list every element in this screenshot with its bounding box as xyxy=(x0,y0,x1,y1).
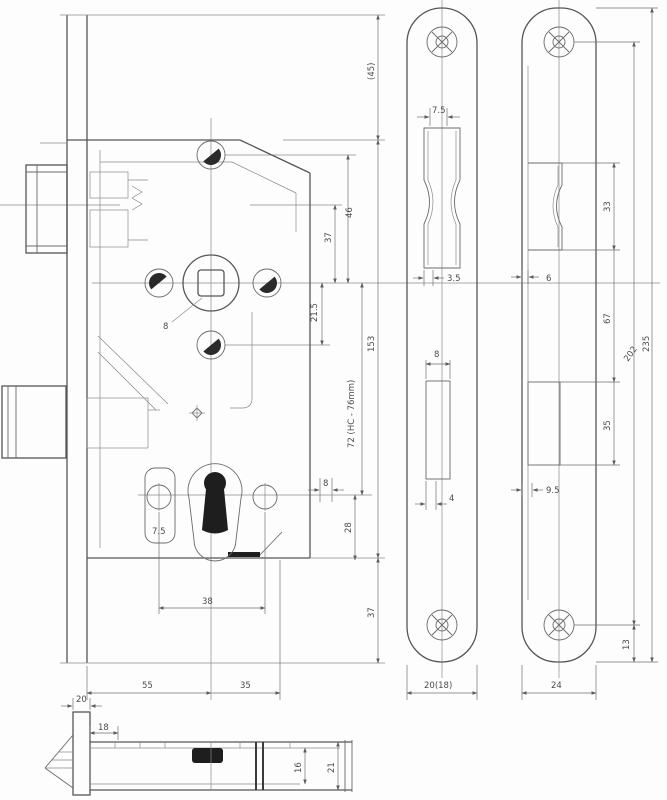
dim-sp-width: 24 xyxy=(551,681,562,691)
dim-bottom-gap: 37 xyxy=(367,607,377,618)
dim-sp-bolt-cutout: 35 xyxy=(603,420,613,431)
keyhole xyxy=(188,464,242,561)
strike-plate-view: 33 6 67 202 235 35 9.5 13 24 xyxy=(511,0,658,700)
dim-bv-inner: 18 xyxy=(98,723,109,733)
dim-fp-bolt-bottom: 4 xyxy=(449,494,454,504)
dim-key-8: 8 xyxy=(323,479,328,489)
bottom-latch-tip xyxy=(45,735,73,788)
main-dimensions: (45) 46 37 21.5 153 72 (HC - 76mm) 8 8 2… xyxy=(87,15,378,700)
strike-latch-cutout xyxy=(528,163,562,250)
faceplate-view: 7.5 3.5 8 4 20(18) xyxy=(407,0,477,700)
dim-sp-bolt-offset: 9.5 xyxy=(546,486,560,496)
dim-sp-latch-cutout: 33 xyxy=(603,201,613,212)
dim-21-5: 21.5 xyxy=(310,303,320,322)
strike-bolt-cutout xyxy=(528,382,560,465)
dim-35-bottom: 35 xyxy=(240,681,251,691)
dim-centres: 72 (HC - 76mm) xyxy=(347,380,357,448)
bottom-view: 20 18 16 21 xyxy=(45,695,352,795)
follower-leader xyxy=(172,298,202,322)
dim-follower-square: 8 xyxy=(163,322,168,332)
bottom-faceplate-bar xyxy=(73,712,90,795)
dim-bv-plate-width: 20 xyxy=(76,695,87,705)
bottom-follower-hub xyxy=(192,748,223,763)
faceplate-edge xyxy=(40,15,385,663)
faceplate-bolt-cutout xyxy=(426,381,450,479)
dim-46: 46 xyxy=(345,207,355,218)
strike-dimensions: 33 6 67 202 235 35 9.5 13 24 xyxy=(511,8,658,700)
dim-28: 28 xyxy=(344,522,354,533)
dim-fp-width: 20(18) xyxy=(424,681,452,691)
dim-fp-bolt-top: 8 xyxy=(434,350,439,360)
dead-bolt xyxy=(2,386,66,458)
dim-backset: 55 xyxy=(142,681,153,691)
dim-sp-screw-centres: 202 xyxy=(622,345,640,364)
dim-sp-bottom-offset: 13 xyxy=(622,639,632,650)
dim-sp-length: 235 xyxy=(642,336,652,352)
lock-drawing-page: (45) 46 37 21.5 153 72 (HC - 76mm) 8 8 2… xyxy=(0,0,667,800)
dim-38: 38 xyxy=(202,597,213,607)
follower-hub xyxy=(172,255,239,322)
dim-sp-between: 67 xyxy=(603,313,613,324)
case-bottom-tab xyxy=(228,552,260,557)
dim-fp-latch-top: 7.5 xyxy=(432,106,446,116)
lock-drawing: (45) 46 37 21.5 153 72 (HC - 76mm) 8 8 2… xyxy=(0,0,667,800)
dim-top-gap: (45) xyxy=(367,63,377,80)
dim-sp-lip: 6 xyxy=(546,274,551,284)
dim-case-height: 153 xyxy=(367,336,377,352)
latch-bolt xyxy=(26,165,67,253)
dim-fp-latch-bottom: 3.5 xyxy=(447,274,461,284)
dim-bv-case-overall: 21 xyxy=(327,762,337,773)
dim-37-upper: 37 xyxy=(324,232,334,243)
dim-bv-case-inner: 16 xyxy=(294,762,304,773)
bottom-case xyxy=(90,740,352,792)
dim-7-5: 7.5 xyxy=(152,527,166,537)
lock-body-view: (45) 46 37 21.5 153 72 (HC - 76mm) 8 8 2… xyxy=(0,15,660,700)
square-hole xyxy=(189,405,205,421)
